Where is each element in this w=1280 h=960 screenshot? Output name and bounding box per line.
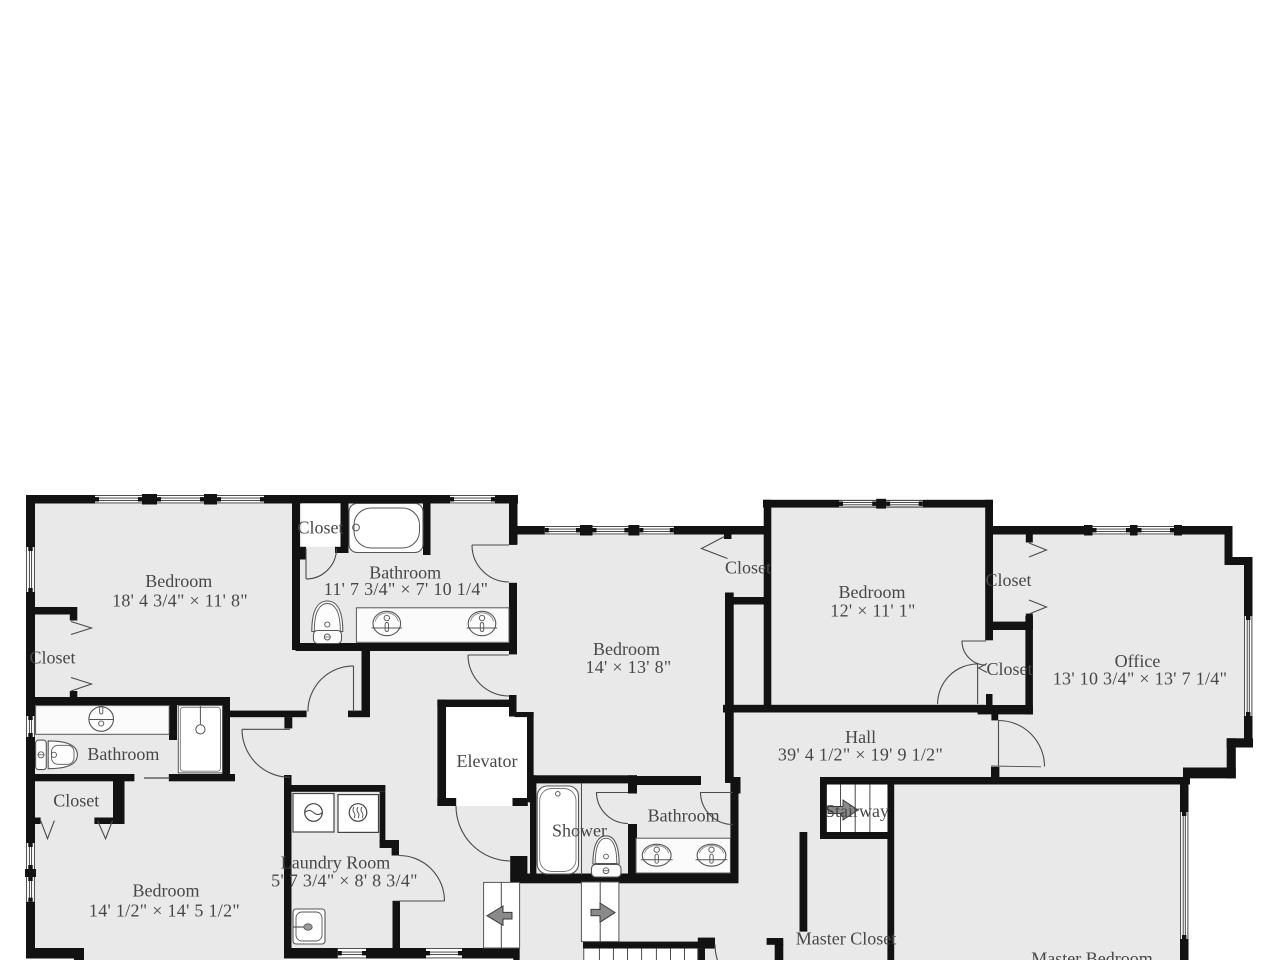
svg-text:Stairway: Stairway: [825, 801, 889, 821]
svg-text:Closet: Closet: [986, 659, 1032, 679]
svg-text:Bathroom: Bathroom: [648, 806, 720, 826]
svg-text:13' 10 3/4" × 13' 7 1/4": 13' 10 3/4" × 13' 7 1/4": [1053, 669, 1228, 689]
svg-text:11' 7 3/4" × 7' 10 1/4": 11' 7 3/4" × 7' 10 1/4": [324, 579, 489, 599]
svg-text:Closet: Closet: [725, 558, 771, 578]
svg-text:Bathroom: Bathroom: [87, 744, 159, 764]
svg-text:39' 4 1/2" × 19' 9 1/2": 39' 4 1/2" × 19' 9 1/2": [778, 745, 943, 765]
svg-text:18' 4 3/4" × 11' 8": 18' 4 3/4" × 11' 8": [112, 591, 248, 611]
svg-text:14' × 13' 8": 14' × 13' 8": [585, 657, 671, 677]
svg-text:Closet: Closet: [985, 570, 1031, 590]
svg-text:12' × 11' 1": 12' × 11' 1": [830, 601, 915, 621]
svg-text:5' 7 3/4" × 8' 8 3/4": 5' 7 3/4" × 8' 8 3/4": [271, 871, 418, 891]
svg-text:Closet: Closet: [297, 518, 343, 538]
svg-text:14' 1/2" × 14' 5 1/2": 14' 1/2" × 14' 5 1/2": [89, 901, 240, 921]
svg-text:Closet: Closet: [29, 648, 75, 668]
svg-text:Bedroom: Bedroom: [593, 639, 660, 659]
svg-text:Bedroom: Bedroom: [145, 571, 212, 591]
svg-text:Master Closet: Master Closet: [796, 929, 897, 949]
svg-text:Bedroom: Bedroom: [839, 582, 906, 602]
svg-text:Shower: Shower: [552, 821, 607, 841]
svg-text:Closet: Closet: [53, 791, 99, 811]
svg-text:Laundry Room: Laundry Room: [281, 852, 391, 872]
svg-text:Elevator: Elevator: [457, 751, 518, 771]
svg-text:Master Bedroom: Master Bedroom: [1031, 949, 1152, 960]
svg-text:Bedroom: Bedroom: [133, 880, 200, 900]
